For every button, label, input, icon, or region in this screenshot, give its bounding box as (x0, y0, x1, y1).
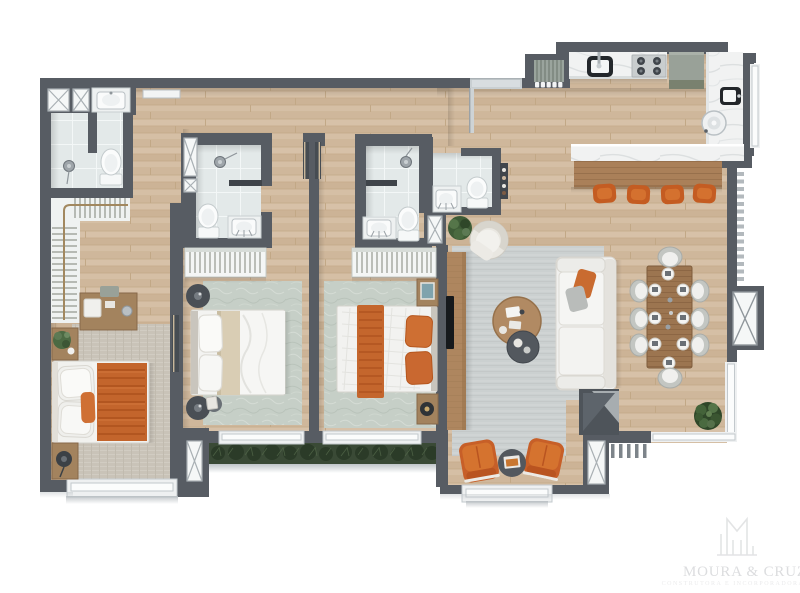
svg-text:CONSTRUTORA E INCORPORADORA: CONSTRUTORA E INCORPORADORA (662, 581, 800, 587)
svg-text:MOURA & CRUZ: MOURA & CRUZ (683, 564, 800, 580)
